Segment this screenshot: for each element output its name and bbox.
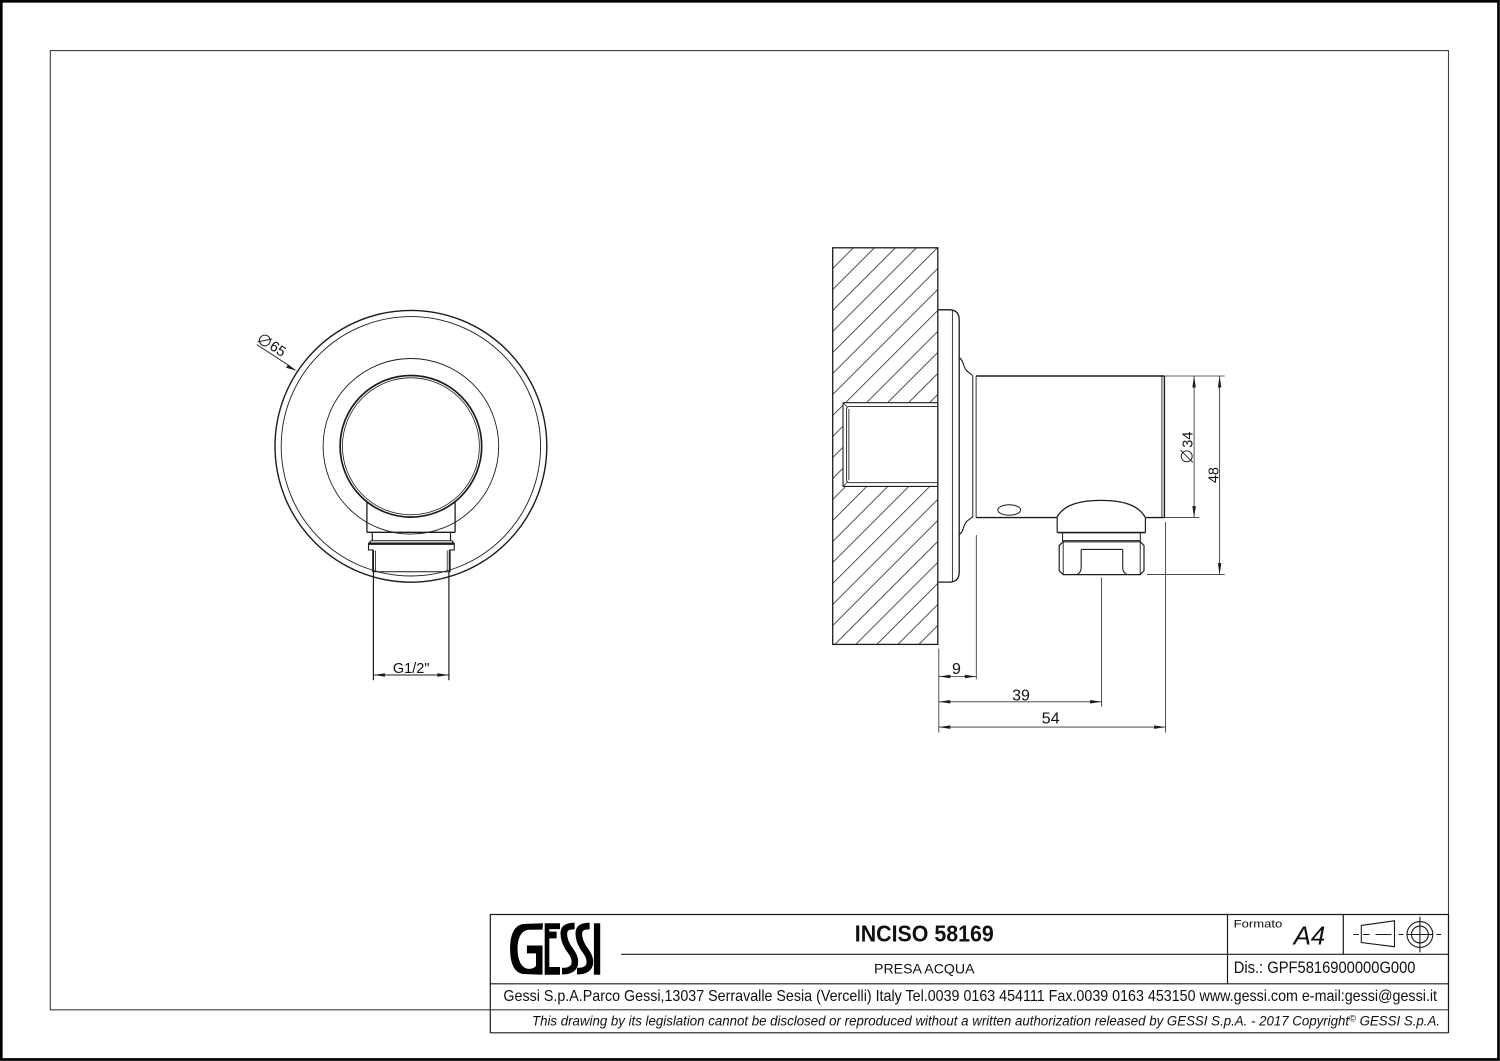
svg-text:54: 54 xyxy=(1042,710,1060,727)
svg-text:This drawing by its legislatio: This drawing by its legislation cannot b… xyxy=(532,1014,1440,1029)
svg-text:34: 34 xyxy=(1180,432,1196,448)
svg-text:9: 9 xyxy=(952,661,961,678)
svg-text:INCISO 58169: INCISO 58169 xyxy=(855,921,994,947)
svg-text:G1/2": G1/2" xyxy=(393,661,430,677)
svg-text:39: 39 xyxy=(1012,687,1030,704)
svg-text:PRESA ACQUA: PRESA ACQUA xyxy=(874,962,975,977)
svg-text:48: 48 xyxy=(1207,467,1223,483)
svg-text:Dis.: GPF5816900000G000: Dis.: GPF5816900000G000 xyxy=(1234,958,1416,977)
svg-text:A4: A4 xyxy=(1292,921,1326,951)
svg-text:Gessi S.p.A.Parco Gessi,13037: Gessi S.p.A.Parco Gessi,13037 Serravalle… xyxy=(503,988,1437,1005)
svg-text:Formato: Formato xyxy=(1234,919,1283,931)
